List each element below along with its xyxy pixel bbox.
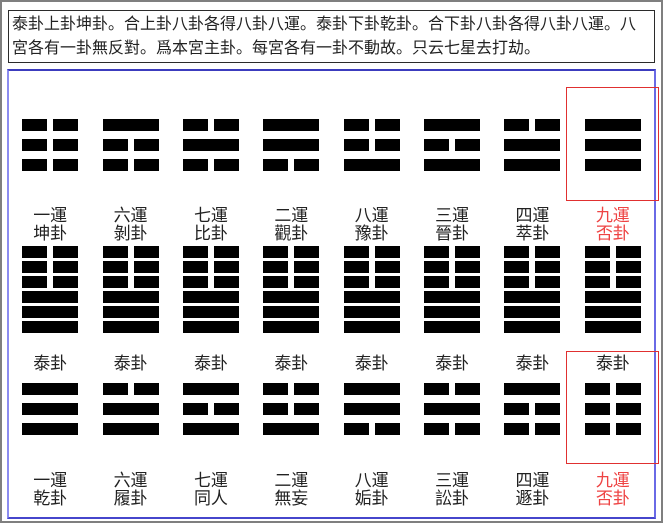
line-segment (53, 119, 78, 131)
upper-label-yun: 三運 (435, 207, 469, 225)
lower-label: 四運 遯卦 (515, 464, 549, 518)
line-segment (214, 261, 239, 273)
line-segment (103, 403, 159, 415)
line-segment (535, 403, 560, 415)
hexagram-slot (492, 246, 572, 351)
lower-group: 泰卦 (412, 351, 492, 464)
tai-label: 泰卦 (355, 354, 389, 374)
lower-trigram-qian (22, 383, 78, 435)
yin-line (585, 246, 641, 258)
yang-line (585, 306, 641, 318)
yang-line (424, 321, 480, 333)
line-segment (263, 306, 319, 318)
upper-label-gua: 豫卦 (355, 225, 389, 243)
tai-hexagram (183, 246, 239, 333)
line-segment (375, 119, 400, 131)
lower-trigram-li (183, 383, 239, 435)
line-segment (103, 139, 128, 151)
line-segment (455, 261, 480, 273)
tai-hexagram (585, 246, 641, 333)
yin-line (22, 119, 78, 131)
lower-group: 泰卦 (10, 351, 90, 464)
yin-line (103, 383, 159, 395)
line-segment (375, 246, 400, 258)
hexagram-slot (10, 246, 90, 351)
yin-line (22, 261, 78, 273)
hexagram-slot (171, 246, 251, 351)
line-segment (134, 159, 159, 171)
line-segment (22, 139, 47, 151)
upper-label-yun: 八運 (355, 207, 389, 225)
line-segment (294, 246, 319, 258)
line-segment (424, 276, 449, 288)
upper-label: 六運 剝卦 (114, 203, 148, 246)
yang-line (344, 383, 400, 395)
yang-line (103, 403, 159, 415)
tai-hexagram (263, 246, 319, 333)
yang-line (183, 291, 239, 303)
upper-trigram-zhen (344, 119, 400, 171)
line-segment (424, 321, 480, 333)
palace-column: 四運 萃卦 泰卦 四運 遯卦 (492, 71, 572, 518)
upper-label-yun: 九運 (596, 207, 630, 225)
yang-line (344, 291, 400, 303)
line-segment (585, 276, 610, 288)
line-segment (294, 159, 319, 171)
yin-line (344, 139, 400, 151)
lower-label-gua: 乾卦 (33, 490, 67, 508)
line-segment (344, 423, 369, 435)
upper-trigram-li (424, 119, 480, 171)
palace-column: 八運 豫卦 泰卦 八運 姤卦 (332, 71, 412, 518)
lower-label: 九運 否卦 (596, 464, 630, 518)
yin-line (344, 261, 400, 273)
line-segment (504, 276, 529, 288)
lower-label-gua: 訟卦 (435, 490, 469, 508)
line-segment (535, 276, 560, 288)
yin-line (504, 403, 560, 415)
yin-line (344, 119, 400, 131)
lower-label-gua: 同人 (194, 490, 228, 508)
line-segment (22, 306, 78, 318)
yin-line (263, 403, 319, 415)
yin-line (263, 159, 319, 171)
yin-line (22, 139, 78, 151)
yang-line (263, 119, 319, 131)
line-segment (424, 306, 480, 318)
line-segment (22, 159, 47, 171)
yin-line (183, 119, 239, 131)
yang-line (22, 321, 78, 333)
palace-column: 七運 比卦 泰卦 七運 同人 (171, 71, 251, 518)
upper-trigram-gen (103, 119, 159, 171)
line-segment (103, 261, 128, 273)
hexagram-slot (251, 246, 331, 351)
line-segment (344, 139, 369, 151)
line-segment (344, 119, 369, 131)
line-segment (103, 246, 128, 258)
line-segment (22, 261, 47, 273)
upper-trigram-slot (492, 71, 572, 203)
line-segment (424, 383, 449, 395)
upper-label-yun: 二運 (274, 207, 308, 225)
lower-label-gua: 履卦 (114, 490, 148, 508)
line-segment (183, 321, 239, 333)
yin-line (504, 246, 560, 258)
line-segment (103, 423, 159, 435)
lower-group: 泰卦 (171, 351, 251, 464)
line-segment (214, 276, 239, 288)
line-segment (504, 291, 560, 303)
line-segment (263, 423, 319, 435)
line-segment (455, 423, 480, 435)
lower-label-yun: 二運 (274, 472, 308, 490)
line-segment (294, 261, 319, 273)
line-segment (344, 246, 369, 258)
page: 泰卦上卦坤卦。合上卦八卦各得八卦八運。泰卦下卦乾卦。合下卦八卦各得八卦八運。八宮… (0, 0, 663, 523)
line-segment (504, 119, 529, 131)
line-segment (585, 306, 641, 318)
line-segment (585, 321, 641, 333)
lower-label-yun: 一運 (33, 472, 67, 490)
upper-label-yun: 四運 (515, 207, 549, 225)
upper-label: 七運 比卦 (194, 203, 228, 246)
line-segment (22, 246, 47, 258)
yang-line (263, 139, 319, 151)
hexagram-slot (332, 246, 412, 351)
line-segment (263, 246, 288, 258)
line-segment (424, 159, 480, 171)
tai-hexagram (22, 246, 78, 333)
yin-line (263, 276, 319, 288)
line-segment (214, 403, 239, 415)
yin-line (504, 119, 560, 131)
line-segment (375, 261, 400, 273)
line-segment (294, 383, 319, 395)
lower-group: 泰卦 (573, 351, 653, 464)
yang-line (263, 306, 319, 318)
line-segment (424, 246, 449, 258)
yang-line (504, 291, 560, 303)
yin-line (263, 261, 319, 273)
upper-trigram-slot (332, 71, 412, 203)
header-note: 泰卦上卦坤卦。合上卦八卦各得八卦八運。泰卦下卦乾卦。合下卦八卦各得八卦八運。八宮… (8, 10, 655, 63)
upper-label-yun: 七運 (194, 207, 228, 225)
upper-label-gua: 觀卦 (274, 225, 308, 243)
yang-line (344, 403, 400, 415)
tai-label: 泰卦 (33, 354, 67, 374)
line-segment (183, 291, 239, 303)
yin-line (22, 276, 78, 288)
yin-line (424, 139, 480, 151)
line-segment (535, 246, 560, 258)
yang-line (424, 291, 480, 303)
yin-line (424, 276, 480, 288)
line-segment (22, 321, 78, 333)
upper-trigram-slot (171, 71, 251, 203)
line-segment (504, 139, 560, 151)
lower-label: 七運 同人 (194, 464, 228, 518)
yang-line (103, 306, 159, 318)
upper-trigram-dui (504, 119, 560, 171)
line-segment (455, 276, 480, 288)
tai-label: 泰卦 (515, 354, 549, 374)
yang-line (424, 159, 480, 171)
line-segment (103, 321, 159, 333)
line-segment (103, 119, 159, 131)
line-segment (344, 403, 400, 415)
yang-line (344, 159, 400, 171)
tai-hexagram (103, 246, 159, 333)
line-segment (504, 321, 560, 333)
yang-line (585, 321, 641, 333)
line-segment (344, 306, 400, 318)
line-segment (344, 276, 369, 288)
line-segment (53, 246, 78, 258)
yin-line (585, 276, 641, 288)
upper-trigram-xun (263, 119, 319, 171)
line-segment (504, 306, 560, 318)
line-segment (504, 423, 529, 435)
upper-label-yun: 六運 (114, 207, 148, 225)
line-segment (504, 246, 529, 258)
upper-trigram-slot (90, 71, 170, 203)
line-segment (103, 306, 159, 318)
line-segment (263, 291, 319, 303)
line-segment (344, 261, 369, 273)
line-segment (183, 383, 239, 395)
line-segment (134, 246, 159, 258)
header-text: 泰卦上卦坤卦。合上卦八卦各得八卦八運。泰卦下卦乾卦。合下卦八卦各得八卦八運。八宮… (12, 16, 636, 57)
line-segment (103, 159, 128, 171)
line-segment (214, 119, 239, 131)
lower-label: 三運 訟卦 (435, 464, 469, 518)
yin-line (424, 383, 480, 395)
line-segment (585, 261, 610, 273)
lower-label: 一運 乾卦 (33, 464, 67, 518)
line-segment (183, 159, 208, 171)
upper-label: 三運 晉卦 (435, 203, 469, 246)
upper-trigram-kan (183, 119, 239, 171)
yang-line (504, 159, 560, 171)
yang-line (344, 306, 400, 318)
yin-line (504, 276, 560, 288)
line-segment (263, 321, 319, 333)
line-segment (344, 159, 400, 171)
yin-line (183, 159, 239, 171)
yang-line (103, 119, 159, 131)
line-segment (424, 423, 449, 435)
line-segment (263, 383, 288, 395)
lower-trigram-xun (344, 383, 400, 435)
upper-label-gua: 剝卦 (114, 225, 148, 243)
line-segment (455, 246, 480, 258)
line-segment (535, 423, 560, 435)
yang-line (504, 383, 560, 395)
lower-label-yun: 六運 (114, 472, 148, 490)
yin-line (103, 246, 159, 258)
tai-hexagram (344, 246, 400, 333)
line-segment (504, 383, 560, 395)
lower-group: 泰卦 (332, 351, 412, 464)
palace-column: 六運 剝卦 泰卦 六運 履卦 (90, 71, 170, 518)
upper-label-yun: 一運 (33, 207, 67, 225)
line-segment (424, 291, 480, 303)
yang-line (22, 403, 78, 415)
yin-line (263, 383, 319, 395)
lower-label-gua: 無妄 (274, 490, 308, 508)
yin-line (504, 423, 560, 435)
yin-line (183, 276, 239, 288)
line-segment (183, 403, 208, 415)
yin-line (103, 139, 159, 151)
yang-line (504, 321, 560, 333)
upper-label-gua: 坤卦 (33, 225, 67, 243)
lower-label-gua: 姤卦 (355, 490, 389, 508)
yang-line (103, 321, 159, 333)
tai-label: 泰卦 (435, 354, 469, 374)
lower-trigram-dui (103, 383, 159, 435)
line-segment (22, 403, 78, 415)
line-segment (294, 403, 319, 415)
line-segment (344, 291, 400, 303)
line-segment (616, 246, 641, 258)
line-segment (263, 276, 288, 288)
yang-line (103, 291, 159, 303)
upper-trigram-slot (251, 71, 331, 203)
line-segment (585, 291, 641, 303)
yang-line (22, 306, 78, 318)
line-segment (455, 139, 480, 151)
upper-trigram-slot (10, 71, 90, 203)
yin-line (183, 261, 239, 273)
line-segment (263, 159, 288, 171)
yang-line (344, 321, 400, 333)
palace-column: 一運 坤卦 泰卦 一運 乾卦 (10, 71, 90, 518)
palace-columns: 一運 坤卦 泰卦 一運 乾卦 六運 剝卦 泰卦 (9, 71, 654, 517)
lower-group: 泰卦 (90, 351, 170, 464)
yang-line (103, 423, 159, 435)
upper-label: 四運 萃卦 (515, 203, 549, 246)
lower-group: 泰卦 (492, 351, 572, 464)
line-segment (344, 383, 400, 395)
yang-line (263, 423, 319, 435)
line-segment (616, 276, 641, 288)
yang-line (183, 306, 239, 318)
lower-label-yun: 八運 (355, 472, 389, 490)
line-segment (263, 261, 288, 273)
yin-line (504, 261, 560, 273)
yang-line (22, 423, 78, 435)
upper-trigram-slot (573, 71, 653, 203)
line-segment (134, 139, 159, 151)
upper-trigram-slot (412, 71, 492, 203)
lower-label-yun: 四運 (515, 472, 549, 490)
yang-line (585, 291, 641, 303)
tai-label: 泰卦 (194, 354, 228, 374)
line-segment (375, 276, 400, 288)
palace-column: 三運 晉卦 泰卦 三運 訟卦 (412, 71, 492, 518)
line-segment (53, 159, 78, 171)
lower-label: 八運 姤卦 (355, 464, 389, 518)
hexagram-slot (90, 246, 170, 351)
line-segment (183, 306, 239, 318)
lower-label-yun: 七運 (194, 472, 228, 490)
yin-line (103, 261, 159, 273)
line-segment (53, 276, 78, 288)
tai-hexagram (424, 246, 480, 333)
line-segment (424, 139, 449, 151)
yang-line (183, 139, 239, 151)
yang-line (504, 139, 560, 151)
line-segment (375, 139, 400, 151)
yang-line (183, 423, 239, 435)
line-segment (616, 261, 641, 273)
line-segment (183, 139, 239, 151)
line-segment (183, 119, 208, 131)
line-segment (344, 321, 400, 333)
line-segment (22, 291, 78, 303)
palace-column: 二運 觀卦 泰卦 二運 無妄 (251, 71, 331, 518)
yin-line (424, 423, 480, 435)
line-segment (183, 423, 239, 435)
line-segment (263, 139, 319, 151)
line-segment (375, 423, 400, 435)
yin-line (183, 403, 239, 415)
line-segment (424, 403, 480, 415)
yin-line (22, 246, 78, 258)
yang-line (183, 383, 239, 395)
upper-label-gua: 比卦 (194, 225, 228, 243)
yin-line (344, 423, 400, 435)
upper-label: 一運 坤卦 (33, 203, 67, 246)
yin-line (344, 246, 400, 258)
yin-line (424, 261, 480, 273)
line-segment (504, 159, 560, 171)
lower-group: 泰卦 (251, 351, 331, 464)
line-segment (103, 383, 128, 395)
yin-line (22, 159, 78, 171)
line-segment (183, 276, 208, 288)
line-segment (504, 403, 529, 415)
line-segment (263, 119, 319, 131)
yin-line (344, 276, 400, 288)
highlight-box-upper (566, 87, 659, 201)
yang-line (22, 291, 78, 303)
yin-line (424, 246, 480, 258)
line-segment (103, 276, 128, 288)
line-segment (183, 246, 208, 258)
lower-label: 二運 無妄 (274, 464, 308, 518)
yang-line (263, 291, 319, 303)
yin-line (263, 246, 319, 258)
upper-label-gua: 萃卦 (515, 225, 549, 243)
line-segment (53, 139, 78, 151)
yin-line (103, 159, 159, 171)
lower-trigram-gen (504, 383, 560, 435)
line-segment (103, 291, 159, 303)
yang-line (424, 119, 480, 131)
line-segment (585, 246, 610, 258)
lower-label: 六運 履卦 (114, 464, 148, 518)
yin-line (585, 261, 641, 273)
line-segment (22, 383, 78, 395)
lower-label-gua: 遯卦 (515, 490, 549, 508)
palace-column: 九運 否卦 泰卦 九運 否卦 (573, 71, 653, 518)
yin-line (183, 246, 239, 258)
line-segment (535, 119, 560, 131)
upper-label: 二運 觀卦 (274, 203, 308, 246)
